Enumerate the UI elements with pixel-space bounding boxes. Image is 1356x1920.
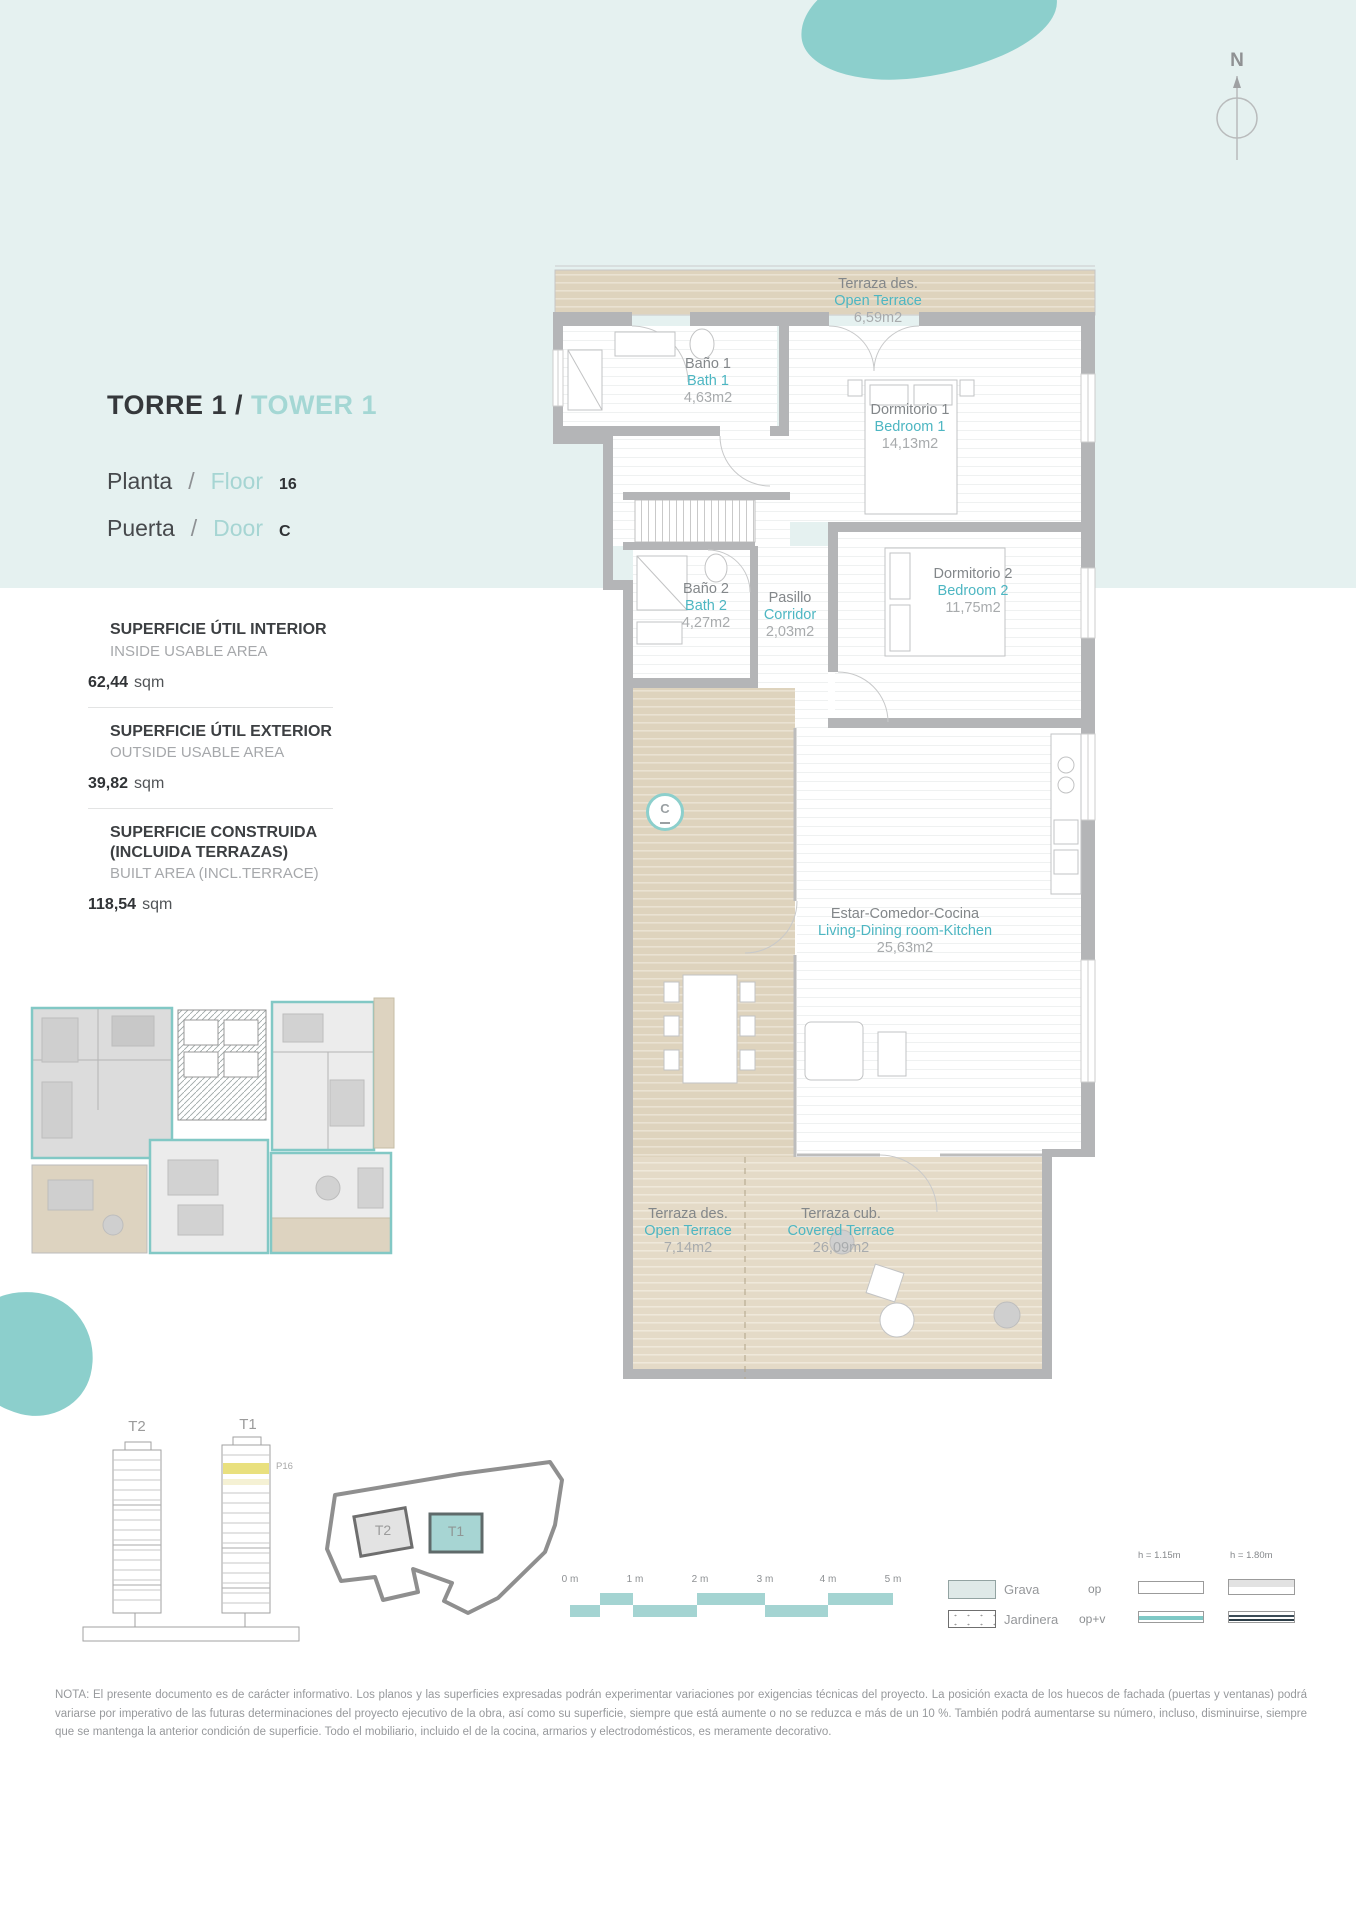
room-label-bath2: Baño 2Bath 24,27m2	[682, 581, 730, 631]
floor-line: Planta/Floor16	[107, 468, 297, 495]
jardinera-label: Jardinera	[1004, 1612, 1058, 1627]
room-label-living: Estar-Comedor-CocinaLiving-Dining room-K…	[818, 906, 992, 956]
compass-icon	[1202, 74, 1272, 170]
site-t2-label: T2	[353, 1522, 413, 1538]
floorplate-key-plan	[28, 990, 438, 1285]
room-label-open-terrace-top: Terraza des.Open Terrace6,59m2	[834, 276, 922, 326]
area-title-es: SUPERFICIE CONSTRUIDA (INCLUIDA TERRAZAS…	[110, 823, 345, 862]
compass-north-label: N	[1202, 50, 1272, 72]
door-threshold-icon	[660, 822, 670, 824]
door-line: Puerta/DoorC	[107, 515, 291, 542]
grava-label: Grava	[1004, 1582, 1039, 1597]
legend: h = 1.15m h = 1.80m Grava op Jardinera o…	[948, 1548, 1318, 1638]
room-label-bath1: Baño 1Bath 14,63m2	[684, 356, 732, 406]
floor-label-es: Planta	[107, 468, 172, 494]
title-en: TOWER 1	[251, 390, 377, 420]
area-unit: sqm	[134, 674, 164, 691]
area-title-en: BUILT AREA (INCL.TERRACE)	[110, 865, 345, 883]
area-value: 39,82	[88, 775, 128, 792]
area-unit: sqm	[142, 896, 172, 913]
room-label-covered-terrace: Terraza cub.Covered Terrace26,09m2	[788, 1206, 895, 1256]
area-value: 62,44	[88, 674, 128, 691]
window-symbol-op-180	[1228, 1579, 1295, 1595]
area-title-en: OUTSIDE USABLE AREA	[110, 744, 345, 762]
area-title-es: SUPERFICIE ÚTIL EXTERIOR	[110, 722, 345, 742]
tower-t1-label: T1	[218, 1416, 278, 1433]
window-symbol-opv-115	[1138, 1611, 1204, 1623]
door-value: C	[279, 523, 291, 540]
room-label-corridor: PasilloCorridor2,03m2	[764, 590, 816, 640]
site-key-plan	[305, 1450, 575, 1630]
tower-elevation-diagram	[75, 1415, 310, 1650]
op-label: op	[1088, 1582, 1101, 1596]
room-label-bedroom1: Dormitorio 1Bedroom 114,13m2	[871, 402, 950, 452]
area-summary: SUPERFICIE ÚTIL INTERIOR INSIDE USABLE A…	[88, 620, 348, 914]
window-symbol-op-115	[1138, 1581, 1204, 1594]
area-interior: SUPERFICIE ÚTIL INTERIOR INSIDE USABLE A…	[88, 620, 348, 692]
title-es: TORRE 1	[107, 390, 227, 420]
grava-swatch	[948, 1580, 996, 1599]
window-symbol-opv-180	[1228, 1611, 1295, 1623]
area-unit: sqm	[134, 775, 164, 792]
area-value: 118,54	[88, 896, 136, 913]
divider	[88, 808, 333, 809]
scale-bar: 0 m 1 m 2 m 3 m 4 m 5 m	[553, 1572, 903, 1622]
legend-h115: h = 1.15m	[1138, 1550, 1181, 1561]
area-title-es: SUPERFICIE ÚTIL INTERIOR	[110, 620, 345, 640]
decorative-blob-bottom	[0, 1278, 107, 1428]
title-slash: /	[235, 390, 243, 420]
floorplan-sheet: N TORRE 1/TOWER 1 Planta/Floor16 Puerta/…	[0, 0, 1356, 1920]
jardinera-swatch	[948, 1610, 996, 1628]
entry-door-marker: C	[646, 793, 684, 831]
tower-t2-label: T2	[107, 1418, 167, 1435]
floor-value: 16	[279, 476, 297, 493]
area-built: SUPERFICIE CONSTRUIDA (INCLUIDA TERRAZAS…	[88, 823, 348, 914]
door-label-es: Puerta	[107, 515, 175, 541]
area-exterior: SUPERFICIE ÚTIL EXTERIOR OUTSIDE USABLE …	[88, 722, 348, 794]
room-label-bedroom2: Dormitorio 2Bedroom 211,75m2	[934, 566, 1013, 616]
highlighted-floor-band	[223, 1463, 269, 1474]
legend-h180: h = 1.80m	[1230, 1550, 1273, 1561]
room-label-open-terrace: Terraza des.Open Terrace7,14m2	[644, 1206, 732, 1256]
area-title-en: INSIDE USABLE AREA	[110, 643, 345, 661]
disclaimer-note: NOTA: El presente documento es de caráct…	[55, 1686, 1307, 1742]
sheet-title: TORRE 1/TOWER 1	[107, 390, 377, 421]
floor-tag: P16	[276, 1461, 293, 1472]
opv-label: op+v	[1079, 1612, 1105, 1626]
divider	[88, 707, 333, 708]
floor-label-en: Floor	[211, 468, 263, 494]
door-label-en: Door	[213, 515, 263, 541]
site-t1-label: T1	[426, 1523, 486, 1539]
